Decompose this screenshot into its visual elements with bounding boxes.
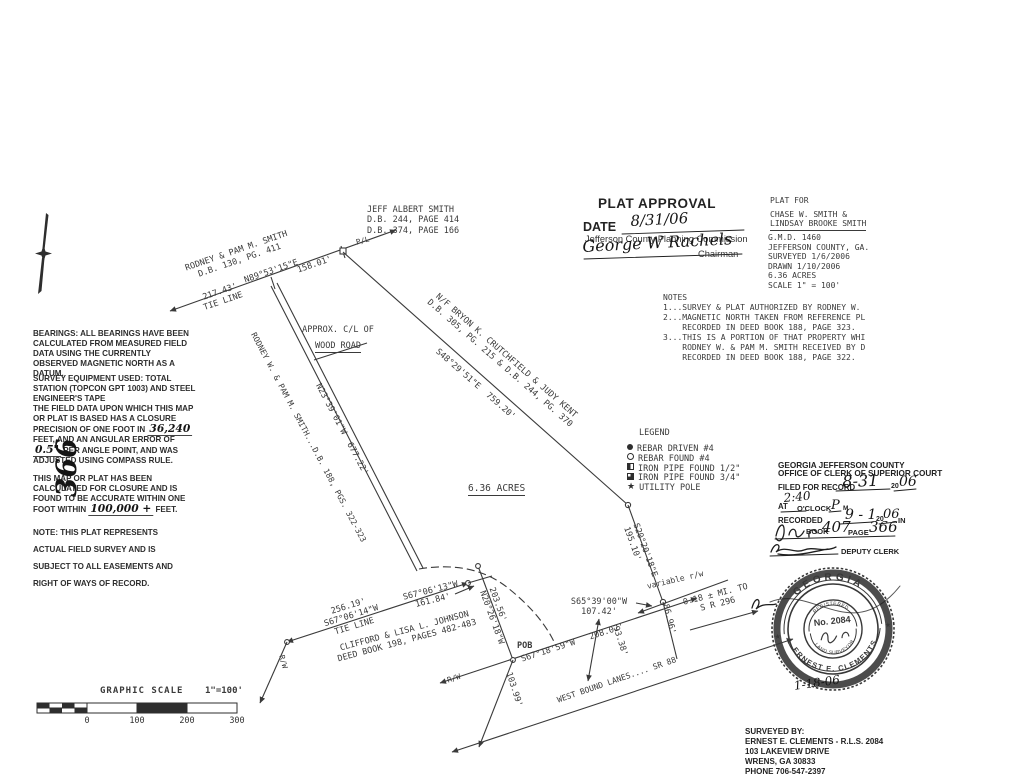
record-note: NOTE: THIS PLAT REPRESENTS ACTUAL FIELD … bbox=[33, 524, 188, 592]
plat-for-name-2: LINDSAY BROOKE SMITH bbox=[770, 219, 866, 231]
equipment-note: SURVEY EQUIPMENT USED: TOTAL STATION (TO… bbox=[33, 374, 204, 404]
graphic-scale-bar: 0 100 200 300 bbox=[37, 703, 245, 726]
scale-tick-300: 300 bbox=[229, 716, 244, 726]
book-value: 407 bbox=[822, 518, 851, 536]
label-approx-cl: APPROX. C/L OF bbox=[298, 325, 378, 335]
legend-item: REBAR DRIVEN #4 bbox=[627, 438, 740, 448]
graphic-scale-title: GRAPHIC SCALE bbox=[100, 686, 183, 696]
label-jeff-albert-smith: JEFF ALBERT SMITH D.B. 244, PAGE 414 D.B… bbox=[367, 205, 459, 236]
utility-pole-icon: ★ bbox=[627, 483, 635, 489]
recorded-label: RECORDED bbox=[778, 516, 823, 525]
label-wood-road: APPROX. C/L OF WOOD ROAD bbox=[298, 325, 378, 353]
label-acreage: 6.36 ACRES bbox=[468, 484, 525, 496]
legend-item-label: UTILITY POLE bbox=[639, 483, 700, 493]
page-label: PAGE bbox=[848, 528, 869, 537]
filed-century-label: 20 bbox=[891, 483, 899, 490]
seal-number-text: No. 2084 bbox=[813, 614, 851, 628]
margin-page-number: 366 bbox=[50, 439, 83, 497]
deputy-clerk-signature bbox=[771, 545, 836, 555]
plat-document-page: 0 100 200 300 GEORGIA ERNEST E. CLEMENTS… bbox=[0, 0, 1024, 783]
filed-year-value: 06 bbox=[899, 474, 917, 490]
boundary-line-ne bbox=[343, 252, 628, 505]
s65-arrow bbox=[636, 603, 652, 606]
legend-title: LEGEND bbox=[627, 428, 740, 438]
scale-tick-100: 100 bbox=[129, 716, 144, 726]
notes-block: NOTES 1...SURVEY & PLAT AUTHORIZED BY RO… bbox=[663, 293, 865, 363]
seal-star-right-icon: ★ bbox=[885, 621, 892, 630]
scale-tick-200: 200 bbox=[179, 716, 194, 726]
accuracy-value: 100,000 + bbox=[88, 502, 153, 516]
accuracy-text-2: FEET. bbox=[153, 504, 177, 514]
bearings-note: BEARINGS: ALL BEARINGS HAVE BEEN CALCULA… bbox=[33, 329, 192, 379]
plat-for-label: PLAT FOR bbox=[770, 196, 809, 206]
book-page-underline bbox=[775, 536, 895, 539]
time-value: 2:40 bbox=[783, 489, 811, 505]
legend-item: IRON PIPE FOUND 1/2" bbox=[627, 458, 740, 468]
approval-date-value: 8/31/06 bbox=[630, 209, 689, 230]
label-bearing-s65: S65°39'00"W 107.42' bbox=[568, 597, 630, 618]
rebar-point bbox=[476, 564, 481, 569]
iron-pipe-symbol bbox=[340, 248, 346, 254]
oclock-label: O'CLOCK bbox=[797, 504, 831, 513]
plat-approval-title: PLAT APPROVAL bbox=[598, 196, 716, 211]
legend: LEGEND REBAR DRIVEN #4 REBAR FOUND #4 IR… bbox=[627, 428, 740, 487]
approval-date-label: DATE bbox=[583, 220, 616, 234]
svg-text:REGISTERED: REGISTERED bbox=[811, 599, 850, 615]
rw-width-line bbox=[588, 619, 599, 681]
page-value: 366 bbox=[869, 518, 898, 536]
plat-for-details: G.M.D. 1460 JEFFERSON COUNTY, GA. SURVEY… bbox=[768, 233, 869, 291]
legend-item: REBAR FOUND #4 bbox=[627, 448, 740, 458]
tie-line-extension bbox=[468, 576, 492, 583]
legend-item: IRON PIPE FOUND 3/4" bbox=[627, 467, 740, 477]
deputy-clerk-label: DEPUTY CLERK bbox=[841, 547, 899, 556]
label-wood-road-name: WOOD ROAD bbox=[315, 341, 361, 352]
chairman-title: Chairman bbox=[698, 249, 738, 259]
scale-tick-0: 0 bbox=[84, 716, 89, 726]
graphic-scale-ratio: 1"=100' bbox=[205, 686, 243, 696]
johnson-west-line bbox=[260, 642, 287, 703]
seal-initials-script bbox=[820, 631, 849, 644]
surveyed-by-block: SURVEYED BY: ERNEST E. CLEMENTS - R.L.S.… bbox=[745, 727, 883, 777]
in-label: IN bbox=[898, 516, 906, 525]
filed-date-value: 8-31 bbox=[842, 471, 879, 491]
meridiem-value: P bbox=[831, 498, 840, 513]
seal-star-left-icon: ★ bbox=[774, 633, 781, 642]
north-arrow-icon bbox=[35, 213, 52, 294]
seal-registered-text: REGISTERED bbox=[811, 599, 850, 615]
label-pob: POB bbox=[517, 641, 532, 651]
